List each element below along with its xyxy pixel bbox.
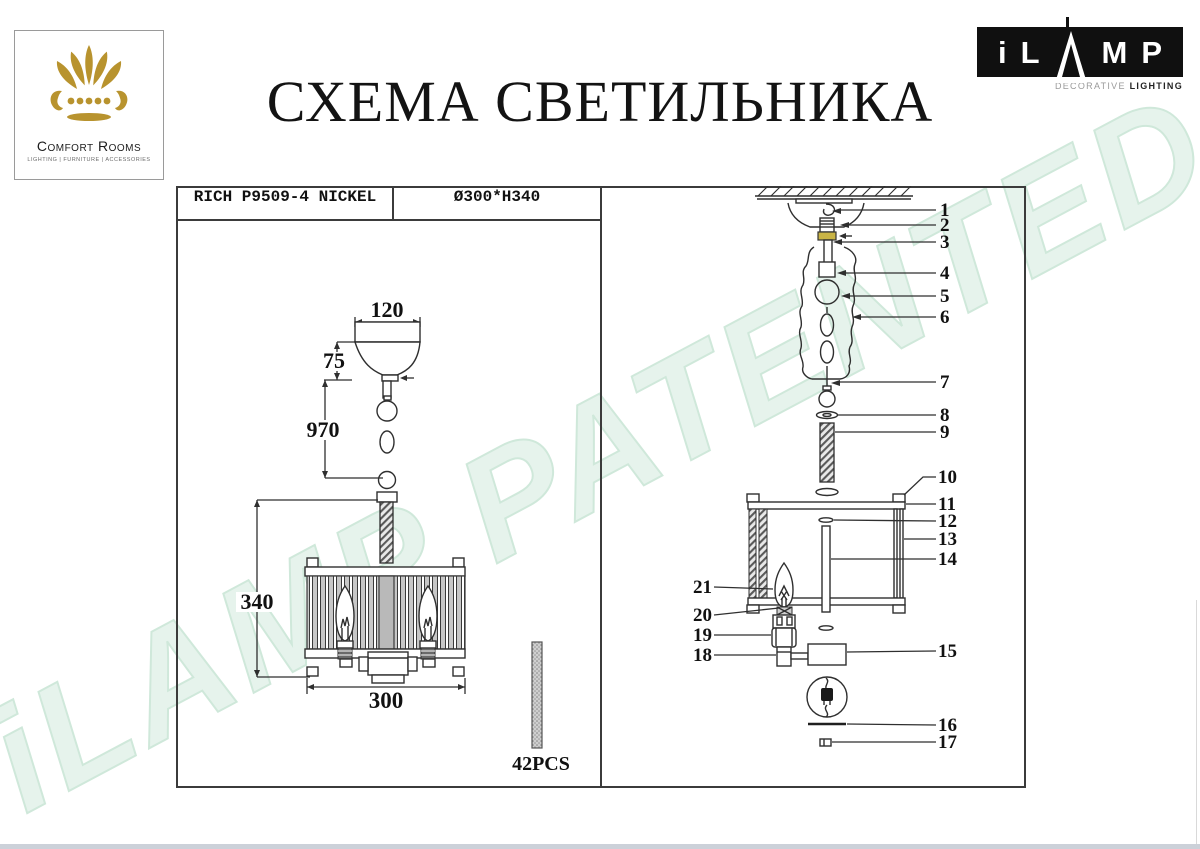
ilamp-subtitle-lighting: LIGHTING (1130, 81, 1183, 91)
left-panel-drawing: 120 75 970 (176, 186, 600, 788)
leader-lines-right (831, 208, 936, 742)
part-label-4: 4 (940, 263, 950, 284)
comfort-rooms-logo: Comfort Rooms LIGHTING | FURNITURE | ACC… (14, 30, 164, 180)
dim-canopy-height: 75 (323, 348, 345, 373)
rod-count-label: 42PCS (512, 753, 570, 775)
suspension-drawing (800, 240, 856, 496)
part-label-13: 13 (938, 529, 957, 550)
dim-shade-height: 340 (241, 589, 274, 614)
part-label-19: 19 (693, 625, 712, 646)
plug-detail-drawing (807, 677, 847, 717)
comfort-rooms-name: Comfort Rooms (15, 138, 163, 154)
ilamp-letter-i: i (998, 37, 1007, 68)
candle-bulb-left (336, 586, 354, 667)
page-title: СХЕМА СВЕТИЛЬНИКА (180, 68, 1020, 135)
schematic-sheet: iLAMP PATENTED Comfort Rooms LIGHTING | … (0, 0, 1200, 849)
canopy-drawing (355, 317, 420, 381)
leader-lines-left (714, 587, 779, 655)
screen-right-edge (1196, 600, 1197, 844)
bulb-socket-drawing (772, 563, 846, 666)
part-label-6: 6 (940, 307, 950, 328)
part-label-14: 14 (938, 549, 958, 570)
bottom-hub-drawing (359, 652, 417, 683)
dim-chain-length: 970 (307, 417, 340, 442)
ilamp-logo: i L M P (977, 27, 1183, 77)
dim-shade-diameter: 300 (369, 688, 404, 713)
clip-drawing (820, 739, 831, 746)
dim-canopy-width: 120 (371, 297, 404, 322)
right-panel-drawing: 1 2 3 4 5 6 7 8 9 10 11 12 13 14 15 16 1… (600, 186, 1028, 788)
part-label-5: 5 (940, 286, 950, 307)
ilamp-lampshade-icon (1054, 29, 1088, 87)
part-label-10: 10 (938, 467, 957, 488)
ilamp-letter-p: P (1141, 37, 1162, 68)
ilamp-letter-l: L (1021, 37, 1040, 68)
ilamp-letter-m: M (1102, 37, 1128, 68)
ceiling-drawing (755, 186, 913, 199)
part-label-7: 7 (940, 372, 950, 393)
brass-nut (818, 232, 836, 240)
comfort-rooms-crown-icon (29, 39, 149, 131)
part-label-17: 17 (938, 732, 958, 753)
screen-bottom-edge (0, 844, 1200, 849)
part-label-9: 9 (940, 422, 950, 443)
ceiling-canopy-drawing (788, 199, 864, 240)
candle-bulb-right (419, 586, 437, 667)
comfort-rooms-tagline: LIGHTING | FURNITURE | ACCESSORIES (15, 157, 163, 163)
ilamp-cord-icon (1066, 17, 1069, 28)
part-label-15: 15 (938, 641, 957, 662)
part-label-21: 21 (693, 577, 712, 598)
part-label-3: 3 (940, 232, 950, 253)
part-label-20: 20 (693, 605, 712, 626)
chain-drawing (377, 381, 397, 563)
frame-drawing (747, 494, 905, 630)
part-label-18: 18 (693, 645, 712, 666)
crystal-rod-sample (532, 642, 542, 748)
